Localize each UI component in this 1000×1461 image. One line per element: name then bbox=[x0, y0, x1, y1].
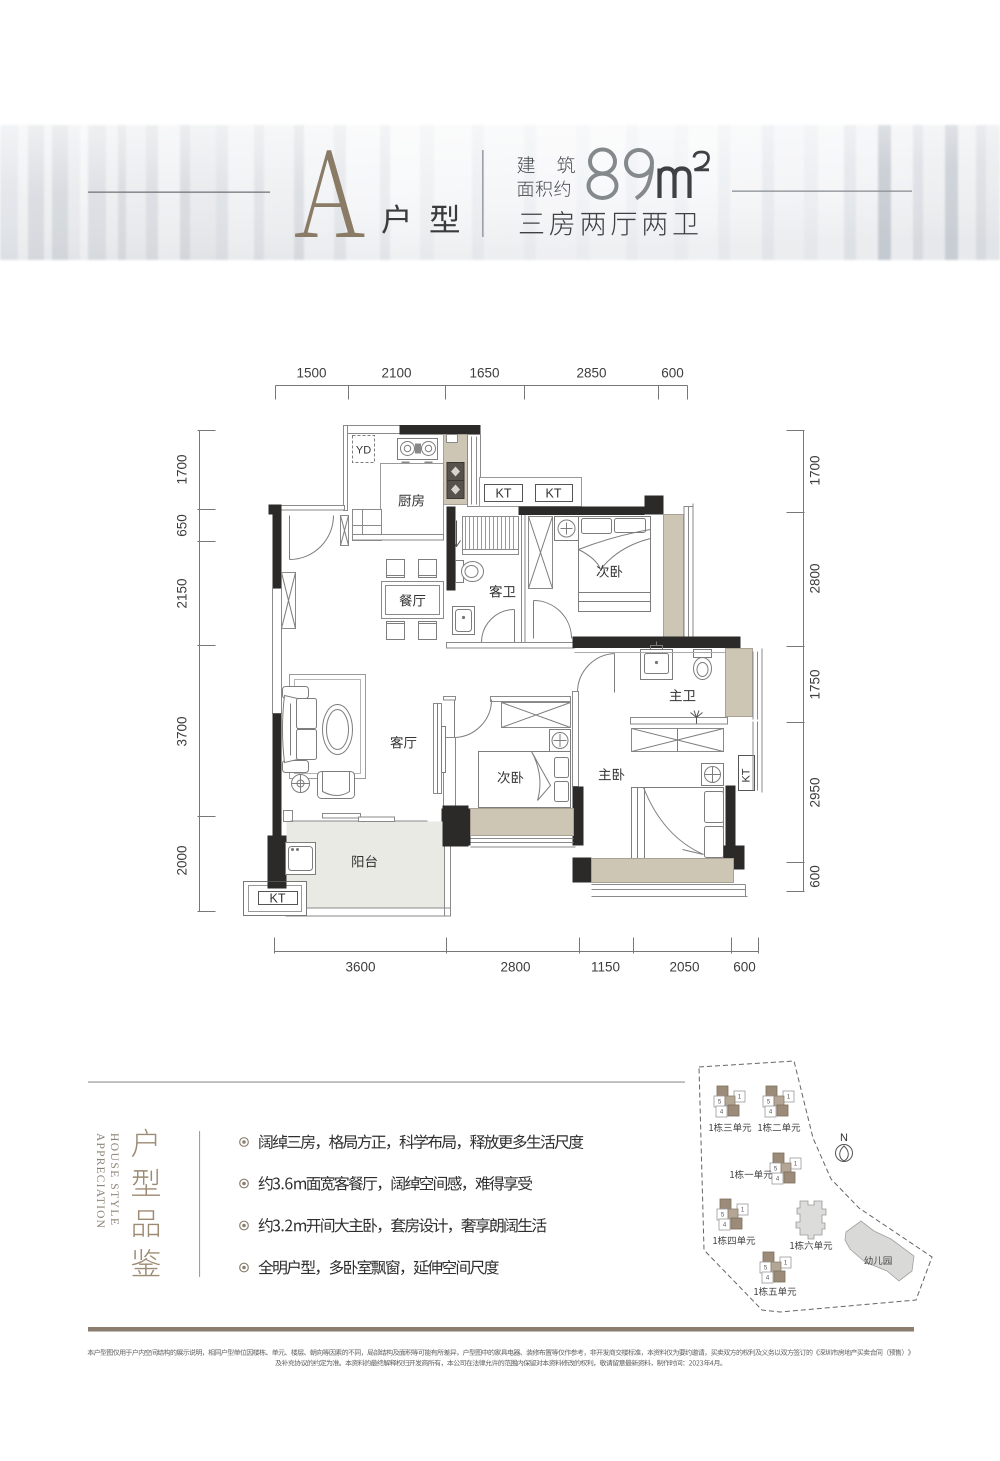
svg-text:HOUSE STYLE: HOUSE STYLE bbox=[108, 1133, 120, 1227]
svg-text:1150: 1150 bbox=[591, 960, 620, 975]
svg-text:1650: 1650 bbox=[469, 366, 499, 381]
svg-text:KT: KT bbox=[270, 892, 286, 906]
svg-text:2950: 2950 bbox=[808, 777, 823, 807]
svg-text:600: 600 bbox=[661, 366, 684, 381]
svg-text:3600: 3600 bbox=[345, 960, 375, 975]
svg-text:2000: 2000 bbox=[175, 845, 190, 875]
svg-text:2050: 2050 bbox=[669, 960, 699, 975]
svg-text:1700: 1700 bbox=[808, 455, 823, 485]
svg-text:1750: 1750 bbox=[808, 669, 823, 699]
svg-text:KT: KT bbox=[741, 768, 753, 782]
svg-text:3700: 3700 bbox=[175, 716, 190, 746]
svg-text:2150: 2150 bbox=[175, 578, 190, 608]
svg-text:2850: 2850 bbox=[576, 366, 606, 381]
svg-text:1500: 1500 bbox=[296, 366, 326, 381]
svg-text:1700: 1700 bbox=[175, 454, 190, 484]
svg-text:N: N bbox=[840, 1132, 848, 1144]
svg-text:650: 650 bbox=[175, 514, 190, 537]
svg-text:2800: 2800 bbox=[500, 960, 530, 975]
svg-text:KT: KT bbox=[496, 487, 512, 501]
svg-text:2800: 2800 bbox=[808, 563, 823, 593]
svg-text:KT: KT bbox=[546, 487, 562, 501]
svg-text:600: 600 bbox=[733, 960, 756, 975]
svg-text:2100: 2100 bbox=[381, 366, 411, 381]
svg-text:600: 600 bbox=[808, 865, 823, 888]
svg-text:APPRECIATION: APPRECIATION bbox=[94, 1133, 106, 1229]
svg-text:YD: YD bbox=[356, 445, 371, 457]
